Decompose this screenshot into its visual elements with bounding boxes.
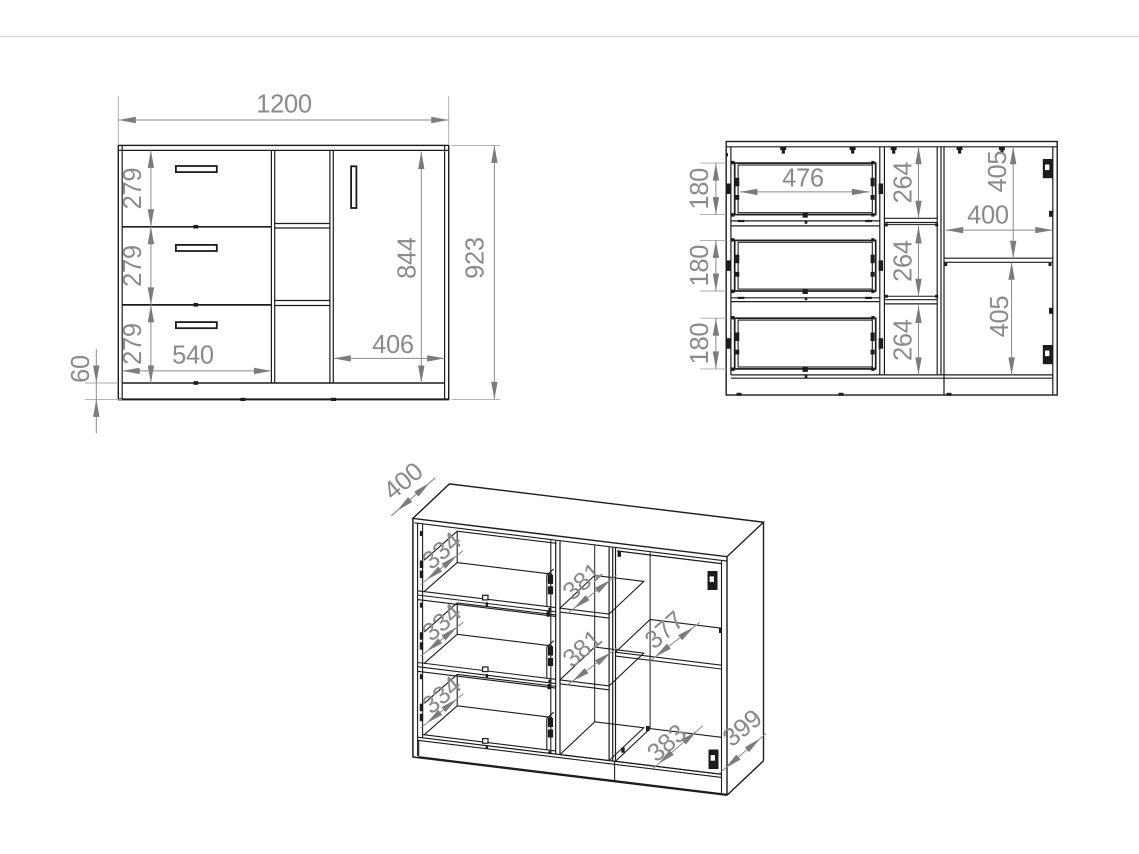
svg-text:264: 264 <box>890 319 918 361</box>
svg-text:60: 60 <box>67 355 95 383</box>
svg-text:406: 406 <box>372 331 414 359</box>
svg-text:405: 405 <box>984 151 1012 193</box>
svg-text:540: 540 <box>172 342 214 370</box>
svg-text:180: 180 <box>686 168 714 210</box>
svg-text:400: 400 <box>967 202 1009 230</box>
svg-text:279: 279 <box>119 168 147 210</box>
svg-text:405: 405 <box>986 296 1014 338</box>
svg-text:1200: 1200 <box>256 91 312 119</box>
svg-text:279: 279 <box>119 323 147 365</box>
svg-text:180: 180 <box>686 323 714 365</box>
svg-text:279: 279 <box>119 245 147 287</box>
svg-text:844: 844 <box>394 237 422 279</box>
svg-text:476: 476 <box>782 165 824 193</box>
svg-text:180: 180 <box>686 245 714 287</box>
svg-text:923: 923 <box>462 237 490 279</box>
svg-text:264: 264 <box>890 162 918 204</box>
svg-text:264: 264 <box>890 240 918 282</box>
